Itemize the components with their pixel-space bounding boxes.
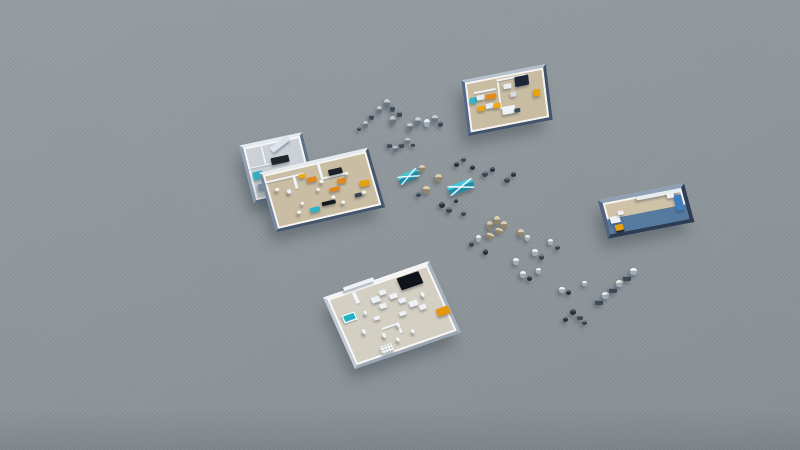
prop-rock[interactable] [555,245,560,250]
furniture-table [477,94,485,100]
furniture-lamp [300,201,305,205]
prop-box[interactable] [411,142,415,147]
prop-cyl[interactable] [518,229,524,237]
prop-cyl[interactable] [501,221,507,229]
prop-cyl[interactable] [559,287,565,293]
prop-rock[interactable] [566,290,571,295]
furniture-lamp [331,195,336,199]
prop-rock[interactable] [461,211,466,216]
prop-box[interactable] [399,142,404,148]
furniture-chair [309,206,320,213]
furniture-table [399,311,407,317]
furniture-sofa [485,93,496,100]
prop-cyl[interactable] [419,165,425,172]
furniture-armchair [436,305,452,317]
furniture-chair [337,178,348,184]
3d-scene-viewport[interactable] [0,0,800,450]
prop-rock[interactable] [504,177,510,183]
prop-box[interactable] [623,274,631,281]
prop-rock[interactable] [527,276,532,281]
furniture-chair [298,173,306,178]
furniture-lamp [287,189,292,193]
interior-wall [260,144,267,165]
furniture-cabinet [514,108,520,113]
furniture-table [373,315,381,321]
prop-cyl[interactable] [407,123,413,131]
furniture-pool [341,311,358,323]
interior-wall [351,290,360,304]
furniture-lamp [395,337,400,342]
prop-cyl[interactable] [423,186,430,194]
prop-cyl[interactable] [520,271,526,278]
prop-cyl[interactable] [487,221,493,230]
furniture-table [418,304,427,311]
prop-rock[interactable] [470,165,475,170]
furniture-cabinet [354,192,362,197]
furniture-lamp [344,171,349,175]
prop-rock[interactable] [461,157,466,162]
prop-rock[interactable] [454,199,458,203]
furniture-chair [359,179,370,187]
prop-cyl[interactable] [630,268,637,275]
prop-cyl[interactable] [532,249,538,256]
furniture-wardrobe [514,75,529,88]
furniture-coffee-table [321,200,335,206]
prop-rock[interactable] [570,309,576,315]
prop-cyl[interactable] [415,117,421,126]
prop-box[interactable] [577,314,583,320]
prop-cyl[interactable] [363,121,368,128]
furniture-lamp [382,333,387,338]
prop-rock[interactable] [483,249,488,255]
furniture-lamp [297,210,302,214]
furniture-lamp [319,179,324,183]
prop-cyl[interactable] [602,292,609,299]
prop-cyl[interactable] [616,280,623,287]
prop-rock[interactable] [416,192,421,197]
furniture-tv-panel [397,271,424,290]
prop-rock[interactable] [469,241,474,247]
furniture-chair [477,105,485,111]
interior-wall [291,175,298,190]
furniture-table [378,302,387,309]
prop-cyl[interactable] [393,146,398,152]
prop-rock[interactable] [582,320,587,325]
prop-rock[interactable] [490,167,495,172]
prop-cyl[interactable] [536,268,541,274]
furniture-stairs [270,136,290,154]
ground-plane [0,0,800,450]
prop-cyl[interactable] [405,138,410,144]
prop-box[interactable] [387,142,392,148]
prop-rock[interactable] [539,254,544,260]
furniture-table [389,292,398,299]
prop-cyl[interactable] [369,113,374,120]
prop-cyl[interactable] [377,106,382,114]
furniture-chair [329,186,341,193]
furniture-table [486,103,494,109]
furniture-chair [533,88,541,96]
prop-box[interactable] [609,286,617,293]
furniture-table [378,289,387,296]
prop-rock[interactable] [439,202,445,208]
prop-cyl[interactable] [513,258,519,265]
furniture-table [398,297,407,304]
furniture-couch [470,97,477,104]
interior-wall [316,162,323,178]
furniture-sofa [271,155,290,165]
prop-box[interactable] [397,110,402,117]
furniture-lamp [420,292,425,297]
prop-cyl[interactable] [548,239,553,245]
prop-cyl[interactable] [390,116,396,125]
prop-rock[interactable] [482,171,488,177]
prop-cyl[interactable] [435,174,442,182]
furniture-table [617,210,624,215]
furniture-table [503,83,511,90]
furniture-tiled-floor [379,343,395,355]
furniture-bed [501,105,515,116]
prop-rock[interactable] [454,162,459,167]
prop-rock[interactable] [511,172,516,177]
furniture-lamp [362,190,367,194]
furniture-lamp [363,310,368,315]
prop-rock[interactable] [446,207,452,213]
prop-cyl[interactable] [525,235,530,241]
furniture-lamp [410,329,415,334]
furniture-lamp [316,187,321,191]
furniture-table [371,295,381,303]
prop-cyl[interactable] [424,119,430,127]
furniture-chair [307,176,318,182]
prop-cyl[interactable] [494,216,500,225]
prop-cyl[interactable] [390,104,395,112]
furniture-lamp [340,200,345,204]
prop-rock[interactable] [563,317,568,322]
prop-box[interactable] [595,298,603,305]
prop-cyl[interactable] [582,281,587,286]
furniture-lamp [362,329,367,334]
prop-cyl[interactable] [432,115,438,123]
prop-rock[interactable] [357,127,361,131]
furniture-lamp [275,187,280,191]
prop-cyl[interactable] [476,235,481,242]
furniture-table [510,91,517,97]
furniture-table [408,299,418,307]
prop-rock[interactable] [438,121,443,127]
